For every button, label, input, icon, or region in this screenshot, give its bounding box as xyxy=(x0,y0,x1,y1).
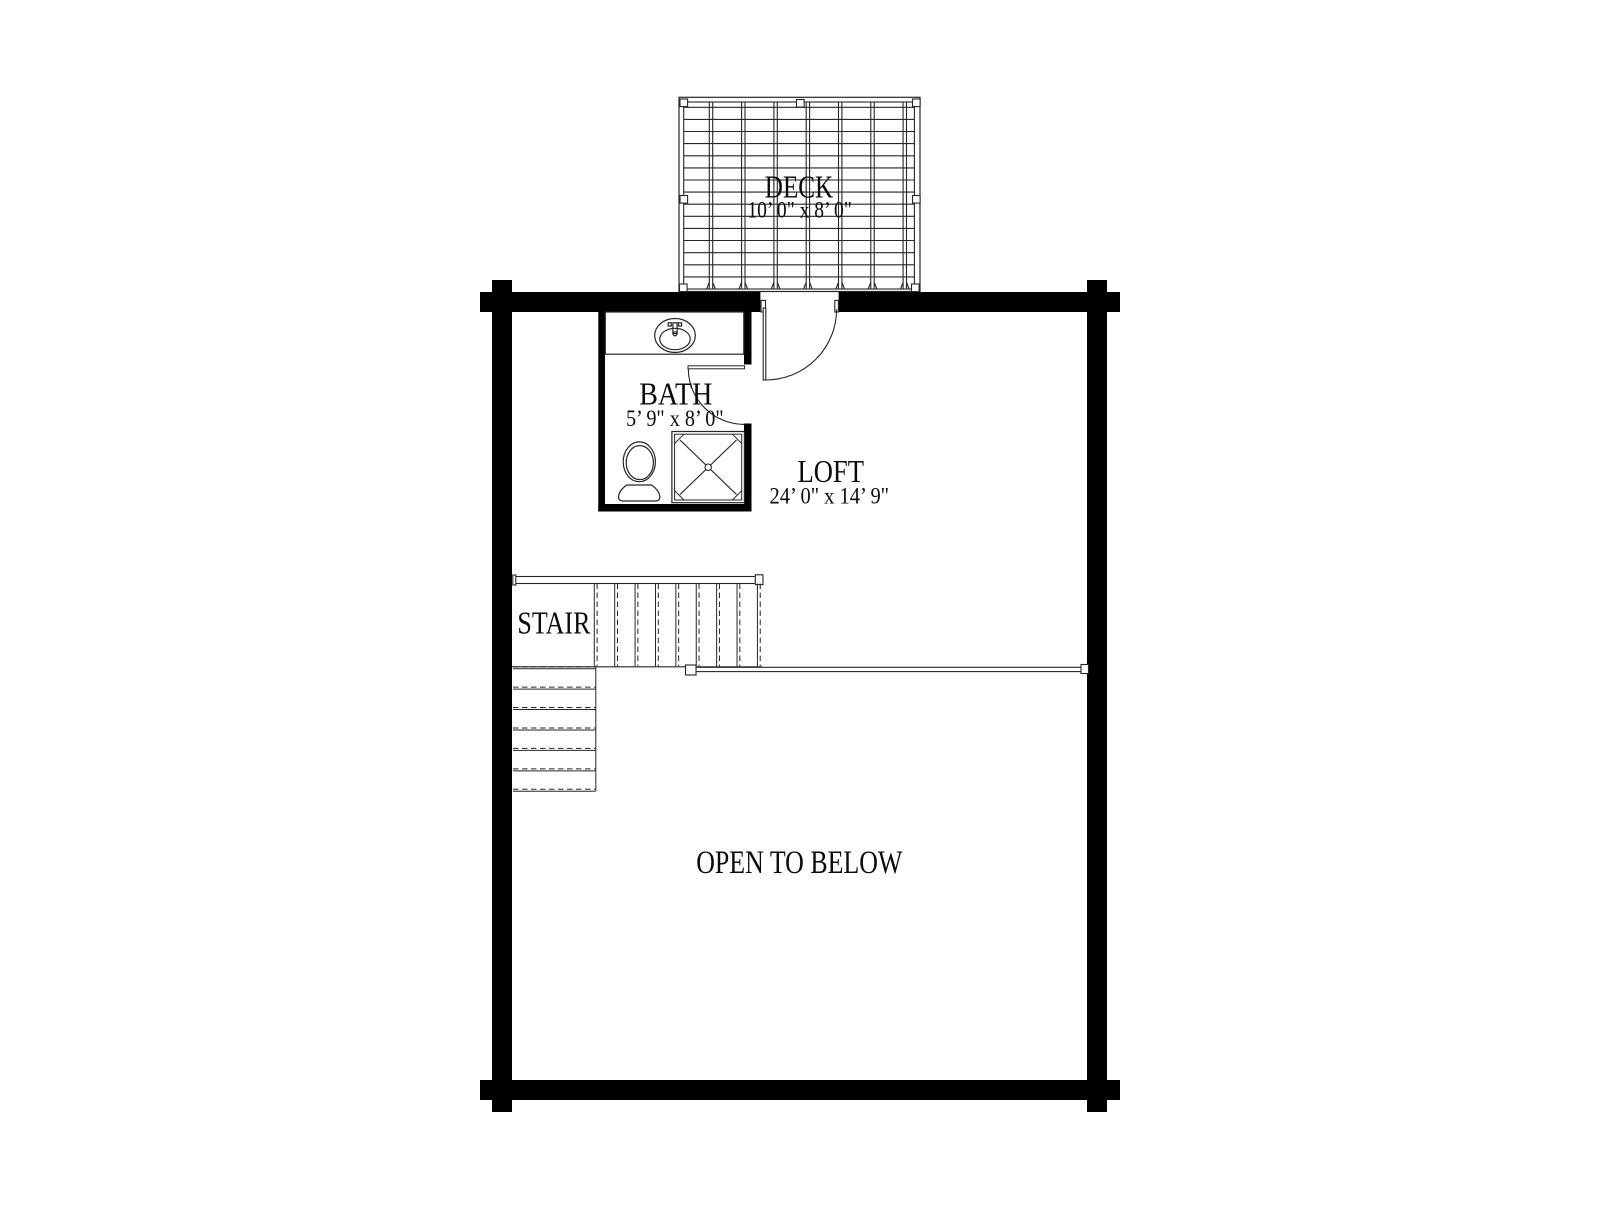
svg-text:STAIR: STAIR xyxy=(517,604,591,640)
svg-text:10’ 0" x 8’ 0": 10’ 0" x 8’ 0" xyxy=(747,198,852,223)
svg-text:24’ 0" x 14’ 9": 24’ 0" x 14’ 9" xyxy=(770,484,890,509)
svg-text:5’ 9" x 8’ 0": 5’ 9" x 8’ 0" xyxy=(626,406,724,431)
svg-text:OPEN TO BELOW: OPEN TO BELOW xyxy=(696,845,903,881)
